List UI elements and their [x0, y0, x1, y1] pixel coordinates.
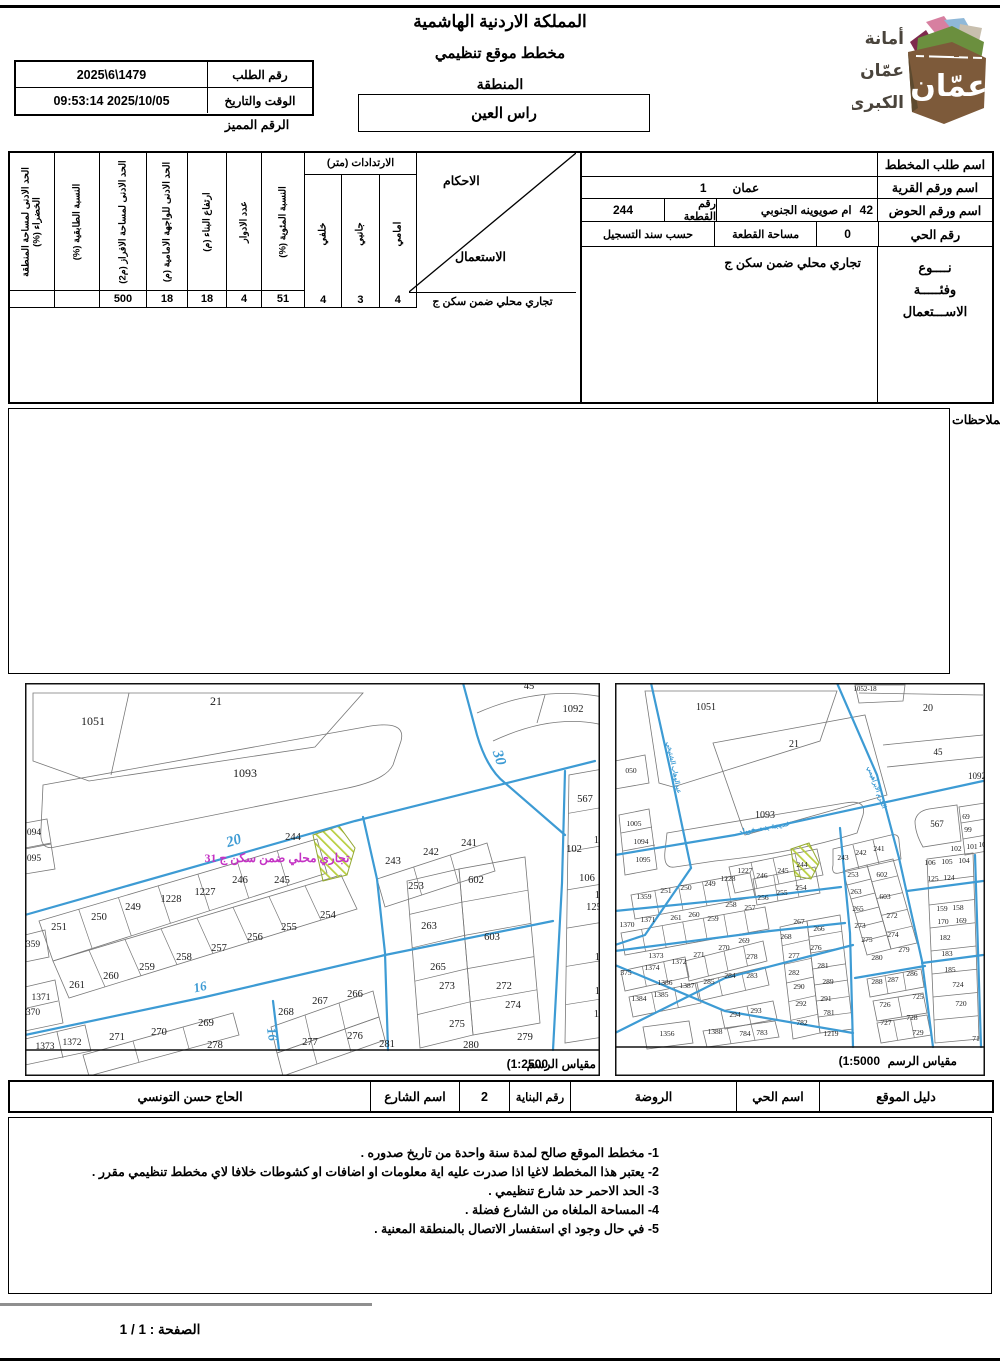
svg-text:100: 100 [978, 840, 985, 849]
conditions-list: 1- مخطط الموقع صالح لمدة سنة واحدة من تا… [39, 1144, 659, 1239]
site-plan-document: المملكة الاردنية الهاشمية مخطط موقع تنظي… [0, 0, 1000, 1365]
condition-item: 4- المساحة الملغاه من الشارع فضلة . [39, 1201, 659, 1220]
top-border [0, 5, 1000, 8]
svg-text:1374: 1374 [645, 963, 660, 972]
svg-text:1371: 1371 [641, 915, 656, 924]
svg-text:1051: 1051 [81, 714, 105, 728]
svg-text:71: 71 [972, 1034, 980, 1043]
basin-name: ام صويوينه الجنوبي [761, 203, 852, 217]
svg-text:281: 281 [379, 1039, 395, 1050]
svg-text:254: 254 [795, 883, 807, 892]
basin-number: 42 [860, 203, 873, 217]
svg-text:279: 279 [517, 1032, 533, 1043]
svg-text:170: 170 [937, 917, 949, 926]
detail-map-2500: (1:2500مقياس الرسم1051211093451092567102… [25, 683, 600, 1081]
svg-text:1092: 1092 [968, 771, 985, 781]
request-info-box: 2025\6\1479 رقم الطلب 09:53:14 2025/10/0… [14, 60, 314, 116]
svg-text:259: 259 [707, 914, 719, 923]
request-number-label: رقم الطلب [207, 62, 312, 87]
svg-text:273: 273 [439, 981, 455, 992]
reg-column: عدد الادوار4 [227, 153, 262, 308]
svg-text:726: 726 [879, 1000, 891, 1009]
svg-text:293: 293 [750, 1006, 762, 1015]
svg-text:20: 20 [923, 703, 933, 714]
svg-text:728: 728 [906, 1013, 918, 1022]
svg-text:270: 270 [718, 943, 730, 952]
district-number-value: 0 [816, 222, 878, 246]
plan-request-row: اسم طلب المخطط [582, 153, 992, 177]
svg-text:1228: 1228 [721, 874, 736, 883]
svg-text:1093: 1093 [233, 766, 257, 780]
svg-text:21: 21 [789, 739, 799, 750]
village-value: 1 عمان [582, 177, 877, 198]
svg-text:257: 257 [744, 903, 756, 912]
basin-row: 244 رقم القطعة 42 ام صويوينه الجنوبي اسم… [582, 199, 992, 222]
svg-text:283: 283 [746, 971, 758, 980]
svg-text:603: 603 [484, 932, 500, 943]
svg-text:249: 249 [704, 879, 716, 888]
svg-text:1005: 1005 [627, 819, 642, 828]
svg-text:729: 729 [912, 1028, 924, 1037]
use-row-value: تجاري محلي ضمن سكن ج [409, 292, 576, 309]
svg-text:125: 125 [927, 874, 939, 883]
svg-text:290: 290 [793, 982, 805, 991]
notes-box [8, 408, 950, 674]
svg-text:مقياس الرسم: مقياس الرسم [527, 1057, 596, 1072]
datetime-row: 09:53:14 2025/10/05 الوقت والتاريخ [16, 88, 312, 113]
svg-text:99: 99 [964, 825, 972, 834]
svg-text:267: 267 [793, 917, 805, 926]
svg-text:375: 375 [620, 968, 632, 977]
svg-text:781: 781 [823, 1008, 835, 1017]
plot-area-label: مساحة القطعة [714, 222, 816, 246]
logo-text-2: عمّان [860, 61, 904, 81]
use-axis-label: الاستعمال [455, 249, 506, 264]
svg-text:602: 602 [468, 875, 484, 886]
plot-area-value: حسب سند التسجيل [582, 222, 714, 246]
svg-text:279: 279 [898, 945, 910, 954]
unique-number-label: الرقم المميز [204, 117, 310, 132]
svg-text:724: 724 [952, 980, 964, 989]
svg-text:159: 159 [936, 904, 948, 913]
diagonal-line [409, 153, 576, 292]
svg-text:267: 267 [312, 996, 328, 1007]
svg-text:258: 258 [176, 952, 192, 963]
svg-text:1228: 1228 [161, 894, 182, 905]
svg-text:251: 251 [660, 886, 672, 895]
village-label: اسم ورقم القرية [877, 177, 992, 198]
svg-text:104: 104 [958, 856, 970, 865]
svg-text:280: 280 [463, 1040, 479, 1051]
svg-text:249: 249 [125, 902, 141, 913]
document-title: مخطط موقع تنظيمي [300, 44, 700, 62]
svg-text:271: 271 [693, 950, 705, 959]
village-name: عمان [733, 181, 760, 195]
svg-text:124: 124 [943, 873, 955, 882]
overview-map-svg: (1:5000مقياس الرسم10512120451052-1810931… [615, 683, 985, 1076]
svg-text:1388: 1388 [708, 1027, 723, 1036]
svg-text:1371: 1371 [32, 993, 51, 1003]
svg-text:286: 286 [906, 969, 918, 978]
svg-text:277: 277 [788, 951, 800, 960]
street-name-label: اسم الشارع [370, 1082, 459, 1111]
gam-logo: عمّان أمانة عمّان الكبرى [852, 12, 990, 128]
svg-text:183: 183 [941, 949, 953, 958]
condition-item: 3- الحد الاحمر حد شارع تنظيمي . [39, 1182, 659, 1201]
svg-text:1387: 1387 [680, 981, 695, 990]
svg-text:1384: 1384 [632, 994, 647, 1003]
svg-text:185: 185 [944, 965, 956, 974]
svg-text:17: 17 [595, 986, 600, 997]
svg-text:1373: 1373 [36, 1042, 55, 1052]
svg-text:278: 278 [746, 952, 758, 961]
svg-text:245: 245 [274, 875, 290, 886]
region-label: المنطقة [300, 76, 700, 93]
svg-text:250: 250 [91, 912, 107, 923]
overview-map-5000: (1:5000مقياس الرسم10512120451052-1810931… [615, 683, 985, 1081]
svg-text:268: 268 [780, 932, 792, 941]
svg-text:727: 727 [880, 1018, 892, 1027]
svg-text:20: 20 [223, 831, 243, 851]
svg-text:1385: 1385 [654, 990, 669, 999]
svg-text:241: 241 [873, 844, 885, 853]
svg-text:256: 256 [247, 932, 263, 943]
svg-text:(1:5000: (1:5000 [839, 1054, 881, 1068]
district-name-label: اسم الحي [736, 1082, 819, 1111]
svg-text:602: 602 [876, 870, 888, 879]
svg-text:30: 30 [489, 747, 509, 768]
reg-column: الحد الادنى لمساحة الافراز (م2)500 [100, 153, 147, 308]
datetime-value: 09:53:14 2025/10/05 [16, 88, 207, 113]
district-number-label: رقم الحي [878, 222, 992, 246]
svg-text:784: 784 [739, 1029, 751, 1038]
svg-text:مقياس الرسم: مقياس الرسم [888, 1054, 957, 1069]
village-row: 1 عمان اسم ورقم القرية [582, 177, 992, 199]
svg-text:280: 280 [871, 953, 883, 962]
svg-text:281: 281 [817, 961, 829, 970]
village-number: 1 [700, 181, 707, 195]
svg-text:370: 370 [26, 1008, 41, 1018]
svg-text:241: 241 [461, 838, 477, 849]
condition-item: 2- يعتبر هذا المخطط لاغيا اذا صدرت عليه … [39, 1163, 659, 1182]
logo-text-1: أمانة [865, 27, 904, 49]
svg-text:102: 102 [566, 844, 582, 855]
basin-value: 42 ام صويوينه الجنوبي [716, 199, 877, 221]
condition-item: 5- في حال وجود اي استفسار الاتصال بالمنط… [39, 1220, 659, 1239]
svg-text:242: 242 [423, 847, 439, 858]
svg-text:106: 106 [924, 858, 936, 867]
provisions-label: الاحكام [443, 173, 480, 188]
svg-text:243: 243 [385, 856, 401, 867]
svg-text:272: 272 [886, 911, 898, 920]
svg-text:294: 294 [729, 1010, 741, 1019]
region-value-box: راس العين [358, 94, 650, 132]
request-number-row: 2025\6\1479 رقم الطلب [16, 62, 312, 88]
svg-text:243: 243 [837, 853, 849, 862]
regulations-table: الحد الادنى لمساحة المنطقة الخضراء (%)ال… [8, 151, 582, 404]
plot-number-value: 244 [582, 199, 664, 221]
svg-text:1095: 1095 [636, 855, 651, 864]
svg-text:245: 245 [777, 866, 789, 875]
svg-text:1373: 1373 [649, 951, 664, 960]
svg-text:257: 257 [211, 943, 227, 954]
request-number-value: 2025\6\1479 [16, 62, 207, 87]
svg-text:256: 256 [757, 893, 769, 902]
svg-text:278: 278 [207, 1040, 223, 1051]
svg-text:خديجة بنت خويلد: خديجة بنت خويلد [738, 819, 791, 838]
logo-collage: عمّان [908, 16, 988, 124]
location-guide-title: دليل الموقع [819, 1082, 992, 1111]
svg-text:1219: 1219 [824, 1029, 839, 1038]
svg-text:253: 253 [847, 870, 859, 879]
svg-text:567: 567 [577, 794, 593, 805]
svg-text:1052-18: 1052-18 [853, 685, 877, 693]
parcel-info-table: اسم طلب المخطط 1 عمان اسم ورقم القرية 24… [580, 151, 994, 404]
svg-text:45: 45 [934, 747, 944, 757]
street-name-value: الحاج حسن التونسي [10, 1082, 370, 1111]
regulations-columns: الحد الادنى لمساحة المنطقة الخضراء (%)ال… [10, 153, 417, 308]
svg-text:1051: 1051 [696, 702, 716, 713]
svg-text:270: 270 [151, 1027, 167, 1038]
svg-text:285: 285 [703, 977, 715, 986]
svg-text:1227: 1227 [195, 887, 216, 898]
logo-text-3: الكبرى [852, 93, 904, 113]
svg-text:265: 265 [430, 962, 446, 973]
svg-text:258: 258 [725, 900, 737, 909]
svg-text:289: 289 [822, 977, 834, 986]
gam-logo-graphic: عمّان أمانة عمّان الكبرى [852, 12, 990, 128]
building-number-label: رقم البناية [509, 1082, 570, 1111]
svg-text:246: 246 [232, 875, 248, 886]
page-number: الصفحة : 1 / 1 [85, 1322, 235, 1338]
svg-text:603: 603 [879, 892, 891, 901]
svg-text:261: 261 [69, 980, 85, 991]
footer-divider [0, 1303, 372, 1306]
svg-text:567: 567 [930, 819, 944, 829]
reg-column: النسبة المئوية (%)51 [262, 153, 305, 308]
bottom-border [0, 1358, 1000, 1361]
svg-text:782: 782 [796, 1018, 808, 1027]
svg-text:266: 266 [813, 924, 825, 933]
svg-text:291: 291 [820, 994, 832, 1003]
svg-text:253: 253 [408, 881, 424, 892]
svg-text:1227: 1227 [738, 866, 753, 875]
svg-text:244: 244 [796, 860, 808, 869]
svg-text:288: 288 [871, 977, 883, 986]
svg-text:094: 094 [27, 828, 42, 838]
svg-text:265: 265 [852, 904, 864, 913]
svg-text:105: 105 [941, 857, 953, 866]
svg-text:1359: 1359 [637, 892, 652, 901]
svg-text:246: 246 [756, 871, 768, 880]
plan-request-label: اسم طلب المخطط [877, 153, 992, 176]
svg-text:1094: 1094 [634, 837, 649, 846]
svg-text:292: 292 [795, 999, 807, 1008]
svg-text:268: 268 [278, 1007, 294, 1018]
svg-text:260: 260 [688, 910, 700, 919]
svg-text:263: 263 [850, 887, 862, 896]
reg-column: النسبة الطابقية (%) [55, 153, 100, 308]
svg-text:تجاري محلي ضمن سكن ج 31: تجاري محلي ضمن سكن ج 31 [205, 851, 351, 866]
plot-number-label: رقم القطعة [664, 199, 716, 221]
reg-column: ارتفاع البناء (م)18 [188, 153, 227, 308]
detail-map-svg: (1:2500مقياس الرسم1051211093451092567102… [25, 683, 600, 1076]
svg-text:259: 259 [139, 962, 155, 973]
svg-text:1092: 1092 [563, 704, 584, 715]
svg-text:725: 725 [912, 992, 924, 1001]
reg-column: الحد الادنى لمساحة المنطقة الخضراء (%) [10, 153, 55, 308]
plan-request-value [582, 153, 877, 176]
svg-text:277: 277 [302, 1037, 318, 1048]
district-row: حسب سند التسجيل مساحة القطعة 0 رقم الحي [582, 222, 992, 247]
svg-text:720: 720 [955, 999, 967, 1008]
location-guide-row: الحاج حسن التونسي اسم الشارع 2 رقم البنا… [8, 1080, 994, 1113]
svg-text:359: 359 [26, 940, 41, 950]
datetime-label: الوقت والتاريخ [207, 88, 312, 113]
use-type-value: تجاري محلي ضمن سكن ج [582, 247, 877, 402]
svg-text:15: 15 [595, 952, 600, 963]
svg-text:284: 284 [724, 971, 736, 980]
logo-calligraphy: عمّان [910, 69, 987, 104]
svg-text:254: 254 [320, 910, 337, 921]
svg-text:10: 10 [594, 835, 600, 846]
svg-text:261: 261 [670, 913, 682, 922]
svg-text:1386: 1386 [658, 978, 673, 987]
svg-text:12: 12 [595, 890, 600, 901]
svg-text:287: 287 [887, 975, 899, 984]
setbacks-group: الارتدادات (متر) خلفيجانبيامامي 434 [305, 153, 417, 308]
svg-text:106: 106 [579, 873, 595, 884]
svg-text:275: 275 [449, 1019, 465, 1030]
svg-text:1372: 1372 [672, 957, 687, 966]
building-number-value: 2 [459, 1082, 509, 1111]
svg-text:255: 255 [281, 922, 297, 933]
svg-text:102: 102 [950, 844, 962, 853]
svg-text:242: 242 [855, 848, 867, 857]
svg-text:1370: 1370 [620, 920, 635, 929]
reg-column: الحد الادنى للواجهة الامامية (م)18 [147, 153, 188, 308]
svg-text:260: 260 [103, 971, 119, 982]
use-type-row: تجاري محلي ضمن سكن ج نــــوع وفئـــــة ا… [582, 247, 992, 402]
svg-text:251: 251 [51, 922, 67, 933]
svg-text:182: 182 [939, 933, 951, 942]
svg-text:271: 271 [109, 1032, 125, 1043]
svg-text:169: 169 [955, 916, 967, 925]
svg-text:274: 274 [887, 930, 899, 939]
svg-text:45: 45 [524, 683, 535, 692]
svg-text:69: 69 [962, 812, 970, 821]
svg-text:269: 269 [198, 1018, 214, 1029]
svg-text:250: 250 [680, 883, 692, 892]
district-name-value: الروضة [570, 1082, 736, 1111]
use-type-label: نــــوع وفئـــــة الاســـتعمال [877, 247, 992, 402]
svg-text:274: 274 [505, 1000, 522, 1011]
svg-text:244: 244 [285, 832, 302, 843]
regulations-diagonal-cell: الاحكام الاستعمال تجاري محلي ضمن سكن ج [409, 153, 576, 308]
svg-text:275: 275 [861, 935, 873, 944]
svg-text:276: 276 [810, 943, 822, 952]
svg-text:272: 272 [496, 981, 512, 992]
condition-item: 1- مخطط الموقع صالح لمدة سنة واحدة من تا… [39, 1144, 659, 1163]
svg-text:269: 269 [738, 936, 750, 945]
svg-text:255: 255 [776, 888, 788, 897]
svg-text:101: 101 [966, 842, 978, 851]
basin-label: اسم ورقم الحوض [877, 199, 992, 221]
svg-text:1093: 1093 [755, 810, 775, 821]
svg-text:1372: 1372 [63, 1038, 82, 1048]
notes-label: الملاحظات [952, 412, 1000, 427]
svg-text:16: 16 [192, 978, 209, 996]
svg-text:095: 095 [27, 854, 42, 864]
svg-text:276: 276 [347, 1031, 363, 1042]
svg-text:21: 21 [210, 694, 222, 708]
conditions-box: 1- مخطط الموقع صالح لمدة سنة واحدة من تا… [8, 1117, 992, 1294]
svg-text:1356: 1356 [660, 1029, 675, 1038]
svg-text:783: 783 [756, 1028, 768, 1037]
svg-text:273: 273 [854, 921, 866, 930]
svg-text:263: 263 [421, 921, 437, 932]
svg-text:125: 125 [586, 902, 600, 913]
kingdom-title: المملكة الاردنية الهاشمية [300, 12, 700, 32]
svg-text:18: 18 [594, 1009, 600, 1020]
svg-text:050: 050 [625, 766, 637, 775]
svg-text:282: 282 [788, 968, 800, 977]
svg-text:158: 158 [952, 903, 964, 912]
svg-text:266: 266 [347, 989, 363, 1000]
